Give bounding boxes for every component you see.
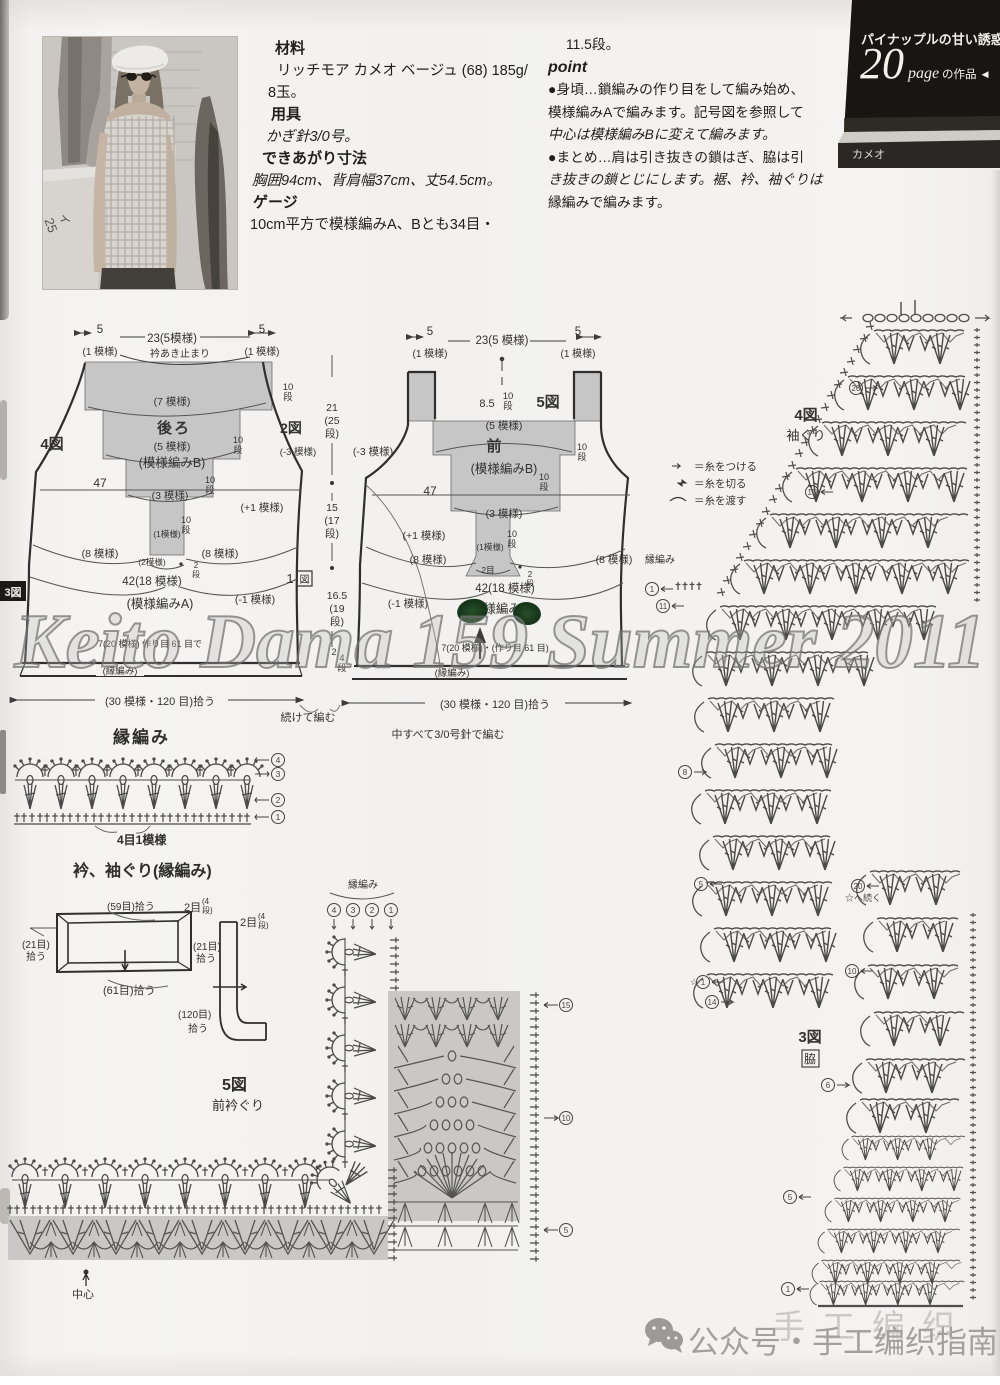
svg-text:15: 15 (326, 502, 338, 514)
svg-text:後ろ: 後ろ (156, 419, 191, 437)
svg-text:(17: (17 (324, 515, 339, 527)
svg-text:47: 47 (423, 484, 437, 498)
svg-text:42(18 模様): 42(18 模様) (122, 574, 182, 588)
svg-text:15: 15 (808, 488, 817, 497)
svg-text:6: 6 (826, 1081, 831, 1090)
svg-text:2図: 2図 (280, 420, 302, 436)
svg-text:☆へ続く: ☆へ続く (845, 892, 881, 903)
svg-text:10: 10 (539, 472, 549, 482)
svg-text:段): 段) (325, 527, 339, 540)
svg-text:段): 段) (325, 427, 339, 440)
svg-text:15: 15 (562, 1001, 571, 1010)
svg-text:前: 前 (486, 437, 501, 455)
svg-text:4: 4 (276, 755, 281, 765)
svg-text:10: 10 (507, 529, 517, 539)
svg-text:前衿ぐり: 前衿ぐり (212, 1098, 264, 1113)
svg-text:(7 模様): (7 模様) (154, 395, 191, 408)
svg-text:2目: 2目 (184, 902, 201, 914)
svg-text:5: 5 (575, 326, 581, 338)
svg-text:42(18 模様): 42(18 模様) (475, 581, 535, 595)
svg-text:(5 模様): (5 模様) (154, 440, 191, 453)
svg-text:5: 5 (427, 326, 433, 338)
svg-text:(3 模様): (3 模様) (152, 489, 189, 502)
svg-text:(2模様): (2模様) (138, 557, 166, 567)
svg-text:2目: 2目 (481, 565, 494, 575)
svg-text:段: 段 (507, 538, 516, 549)
svg-text:(21目): (21目) (22, 940, 50, 951)
svg-text:(4: (4 (258, 912, 266, 921)
svg-text:2: 2 (194, 561, 199, 570)
svg-text:21: 21 (326, 402, 338, 414)
svg-text:(3 模様): (3 模様) (486, 507, 523, 520)
svg-text:段: 段 (503, 400, 513, 412)
svg-text:5: 5 (564, 1226, 569, 1235)
svg-text:3: 3 (351, 905, 356, 915)
svg-text:(21目): (21目) (193, 942, 221, 953)
svg-text:1: 1 (701, 978, 706, 987)
svg-text:中心: 中心 (72, 1288, 94, 1301)
svg-text:23(5 模様): 23(5 模様) (475, 333, 528, 347)
svg-text:4目1模様: 4目1模様 (117, 832, 167, 847)
svg-text:(59目)拾う: (59目)拾う (107, 900, 155, 913)
svg-text:縁編み: 縁編み (348, 878, 378, 891)
svg-text:5: 5 (788, 1193, 793, 1202)
svg-text:段: 段 (192, 569, 200, 579)
svg-text:(8 模様): (8 模様) (202, 547, 239, 560)
svg-text:段): 段) (202, 905, 213, 915)
svg-text:1: 1 (286, 571, 293, 586)
svg-text:5図: 5図 (222, 1076, 247, 1094)
svg-text:10: 10 (233, 435, 243, 445)
svg-text:(25: (25 (324, 415, 339, 427)
svg-text:(8 模様): (8 模様) (82, 547, 119, 560)
svg-text:段): 段) (258, 920, 269, 930)
svg-text:4図: 4図 (40, 436, 63, 453)
svg-text:(-3 模様): (-3 模様) (353, 445, 393, 458)
svg-text:3: 3 (276, 769, 281, 779)
svg-text:2: 2 (276, 795, 281, 805)
svg-text:(1 模様): (1 模様) (413, 347, 448, 360)
svg-text:5: 5 (259, 324, 265, 336)
svg-text:1: 1 (786, 1285, 791, 1294)
svg-text:縁編み: 縁編み (645, 553, 675, 566)
svg-text:2: 2 (370, 905, 375, 915)
svg-text:1: 1 (389, 905, 394, 915)
svg-text:(8 模様): (8 模様) (410, 553, 447, 566)
svg-text:20: 20 (854, 882, 863, 891)
svg-text:段: 段 (283, 391, 293, 403)
svg-text:10: 10 (205, 475, 215, 485)
svg-text:(120目): (120目) (178, 1010, 211, 1021)
svg-text:段: 段 (205, 484, 214, 495)
svg-text:縁編み: 縁編み (113, 727, 170, 747)
svg-text:段: 段 (539, 481, 548, 492)
svg-text:脇: 脇 (804, 1052, 816, 1066)
svg-text:段: 段 (181, 524, 190, 535)
svg-text:段: 段 (233, 444, 242, 455)
svg-text:4図: 4図 (794, 407, 817, 424)
svg-text:(模様編みB): (模様編みB) (471, 461, 538, 476)
svg-text:8: 8 (683, 768, 688, 777)
svg-text:(+1 模様): (+1 模様) (403, 529, 446, 542)
svg-text:10: 10 (181, 515, 191, 525)
svg-text:10: 10 (562, 1114, 571, 1123)
svg-text:5図: 5図 (536, 394, 559, 411)
svg-text:袖ぐり: 袖ぐり (786, 428, 825, 443)
svg-text:＝糸をつける: ＝糸をつける (694, 461, 757, 473)
svg-text:2: 2 (528, 570, 533, 579)
svg-text:衿あき止まり: 衿あき止まり (150, 347, 210, 360)
svg-text:(1模様): (1模様) (476, 542, 504, 552)
svg-text:(4: (4 (202, 897, 210, 906)
svg-text:段: 段 (577, 451, 586, 462)
svg-text:1: 1 (276, 812, 281, 822)
svg-text:5: 5 (97, 324, 103, 336)
svg-text:＝糸を切る: ＝糸を切る (694, 478, 747, 490)
svg-text:＝糸を渡す: ＝糸を渡す (694, 494, 747, 507)
svg-text:拾う: 拾う (196, 952, 216, 965)
svg-text:2目: 2目 (240, 917, 257, 929)
svg-text:20: 20 (852, 384, 861, 393)
svg-text:拾う: 拾う (188, 1022, 208, 1035)
svg-text:8.5: 8.5 (479, 398, 494, 410)
svg-text:(模様編みB): (模様編みB) (139, 455, 206, 470)
svg-text:3図: 3図 (798, 1029, 821, 1046)
svg-text:(1 模様): (1 模様) (83, 345, 118, 358)
svg-text:(1 模様): (1 模様) (561, 347, 596, 360)
svg-text:10: 10 (848, 967, 857, 976)
svg-text:図: 図 (300, 574, 310, 586)
svg-text:(-3 模様): (-3 模様) (280, 446, 316, 458)
svg-text:4: 4 (332, 905, 337, 915)
svg-text:衿、袖ぐり(縁編み): 衿、袖ぐり(縁編み) (73, 861, 212, 880)
svg-text:14: 14 (708, 998, 717, 1007)
svg-text:拾う: 拾う (26, 950, 46, 963)
svg-text:(1 模様): (1 模様) (245, 345, 280, 358)
svg-text:10: 10 (577, 442, 587, 452)
svg-text:(+1 模様): (+1 模様) (241, 501, 284, 514)
svg-text:23(5模様): 23(5模様) (147, 331, 197, 345)
svg-text:47: 47 (93, 476, 107, 490)
svg-text:(1模様): (1模様) (153, 529, 181, 539)
svg-text:(61目)拾う: (61目)拾う (103, 983, 156, 997)
svg-text:5: 5 (699, 880, 704, 889)
svg-text:(5 模様): (5 模様) (486, 419, 523, 432)
svg-text:1: 1 (650, 585, 655, 594)
